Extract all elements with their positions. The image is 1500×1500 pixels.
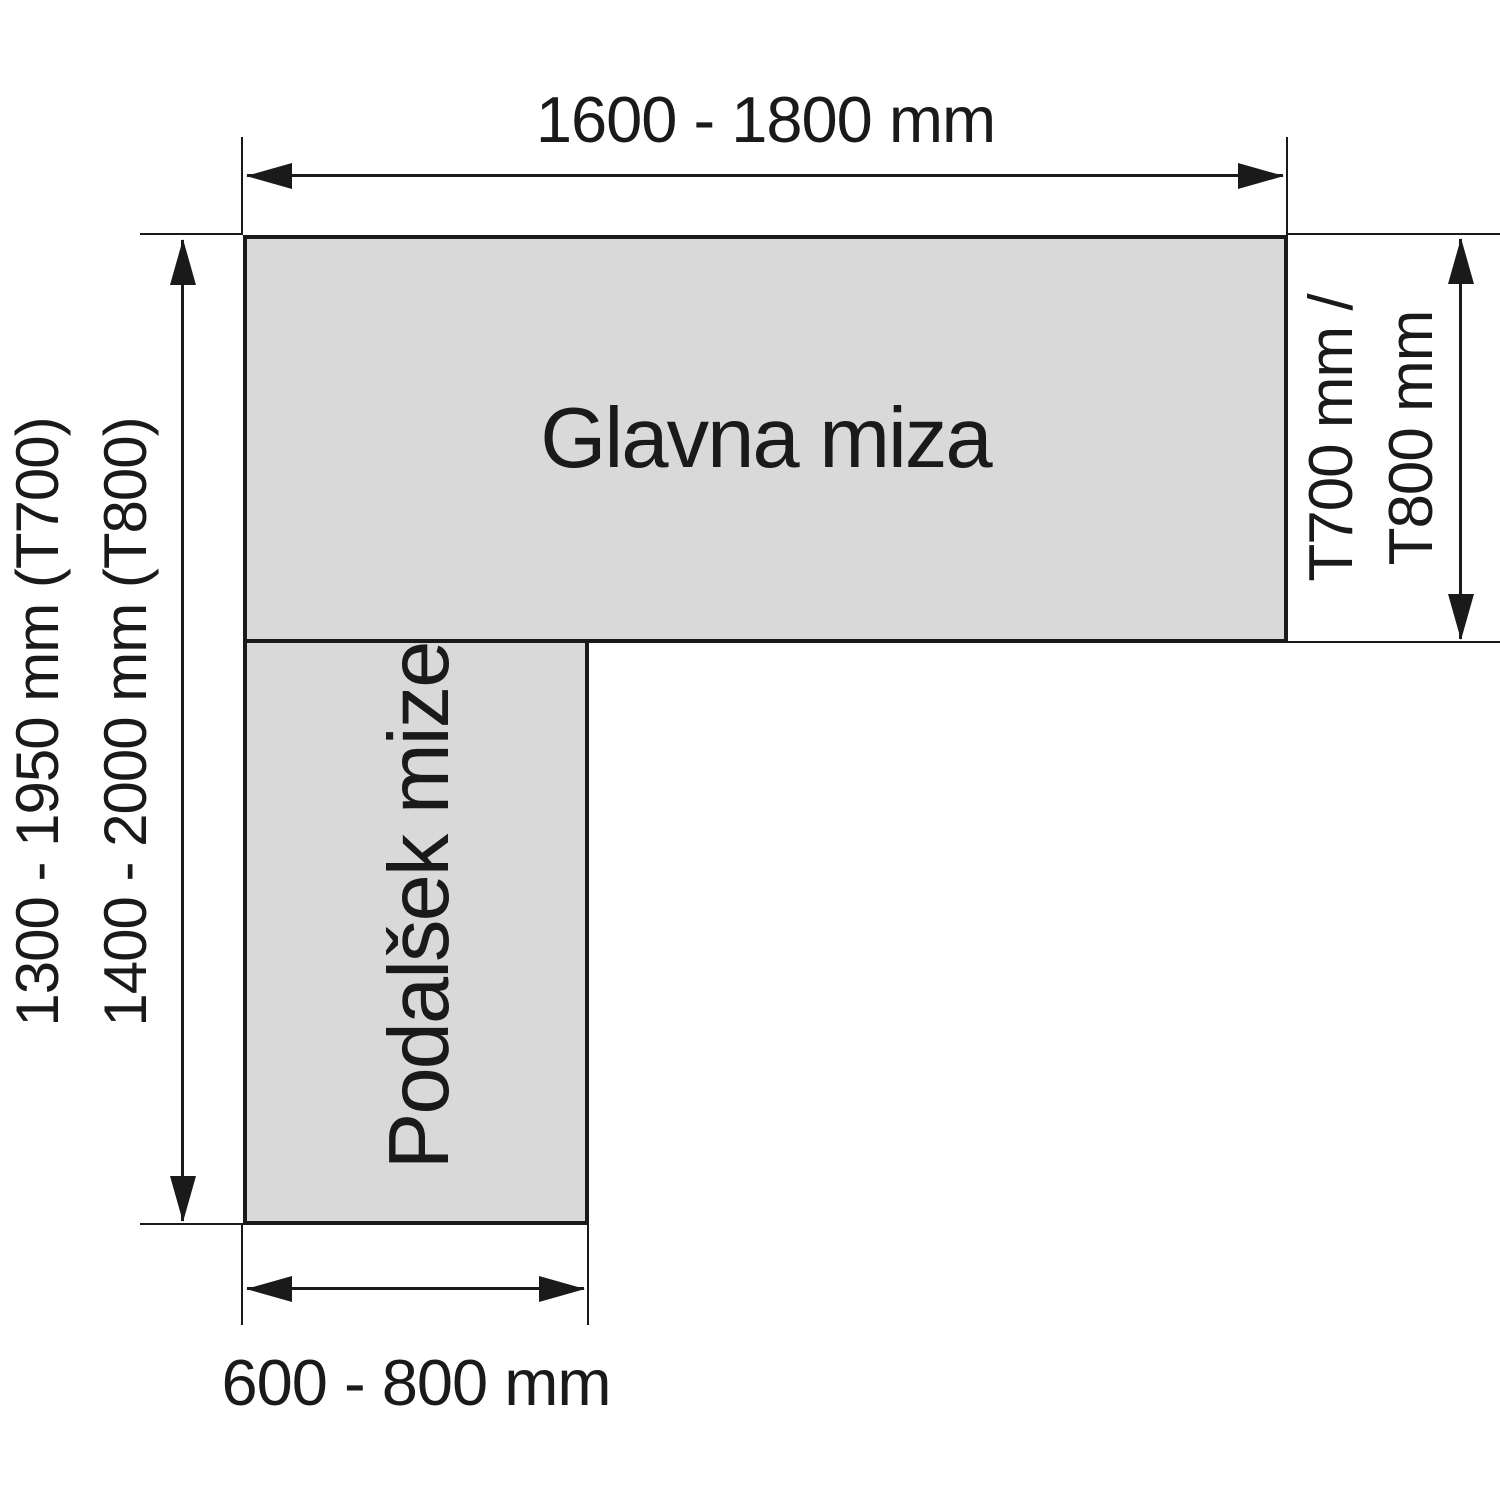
extension-line-top-left-horizontal xyxy=(140,233,243,235)
left-dimension-label: 1300 - 1950 mm (T700) 1400 - 2000 mm (T8… xyxy=(0,417,170,1026)
extension-line-bottom-right-horizontal xyxy=(1288,641,1500,643)
right-dimension-label-line1: T700 mm / xyxy=(1292,294,1372,581)
bottom-dimension-label: 600 - 800 mm xyxy=(213,1345,619,1420)
extension-table-label: Podalšek mize xyxy=(371,643,469,1170)
left-dimension-arrow xyxy=(181,240,184,1221)
right-dimension-arrow xyxy=(1459,239,1462,639)
extension-line-bottom-left-horizontal xyxy=(140,1223,243,1225)
main-table-label: Glavna miza xyxy=(243,235,1288,643)
left-dimension-label-line1: 1300 - 1950 mm (T700) xyxy=(0,417,82,1026)
right-dimension-label: T700 mm / T800 mm xyxy=(1292,294,1452,581)
top-dimension-arrow xyxy=(247,174,1283,177)
bottom-dimension-arrow xyxy=(247,1287,584,1290)
right-dimension-label-line2: T800 mm xyxy=(1372,294,1452,581)
top-dimension-label: 1600 - 1800 mm xyxy=(243,82,1288,157)
extension-line-top-right-horizontal xyxy=(1288,233,1500,235)
extension-line-bottom-left-vertical xyxy=(241,1225,243,1325)
left-dimension-label-line2: 1400 - 2000 mm (T800) xyxy=(82,417,170,1026)
extension-line-bottom-mid-vertical xyxy=(587,1225,589,1325)
desk-dimension-diagram: 1600 - 1800 mm Glavna miza Podalšek mize… xyxy=(0,0,1500,1500)
main-table-label-text: Glavna miza xyxy=(540,390,990,488)
